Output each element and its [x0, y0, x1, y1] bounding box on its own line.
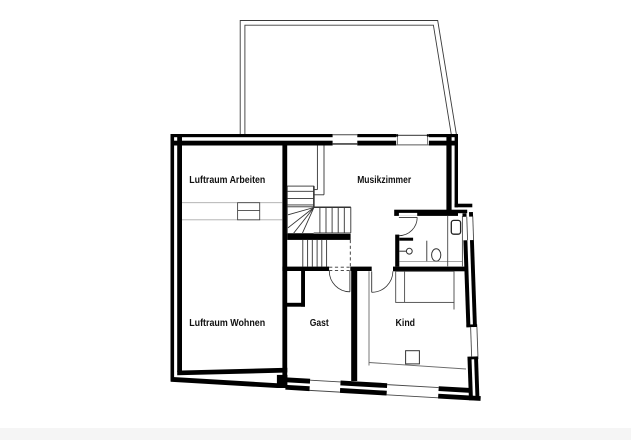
svg-text:Luftraum Wohnen: Luftraum Wohnen — [189, 318, 265, 329]
svg-text:Gast: Gast — [310, 318, 330, 329]
svg-text:Musikzimmer: Musikzimmer — [357, 175, 411, 186]
svg-text:Luftraum Arbeiten: Luftraum Arbeiten — [189, 175, 265, 186]
svg-text:Kind: Kind — [396, 318, 416, 329]
